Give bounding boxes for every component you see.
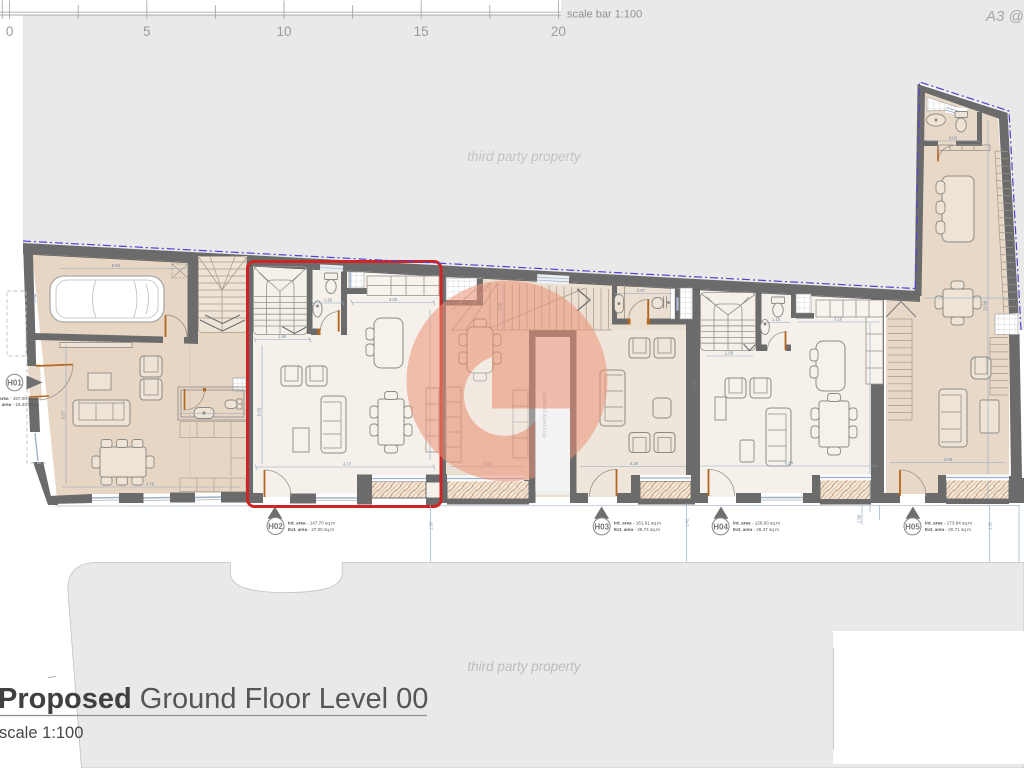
svg-text:4.79: 4.79: [146, 482, 155, 487]
svg-text:Ext. area - 29.74 sq.m: Ext. area - 29.74 sq.m: [614, 527, 660, 532]
svg-text:1.50: 1.50: [857, 514, 862, 523]
svg-text:H04: H04: [713, 522, 728, 531]
svg-text:20: 20: [551, 24, 566, 39]
svg-text:1.98: 1.98: [278, 334, 287, 339]
svg-text:5: 5: [143, 24, 151, 39]
svg-text:H05: H05: [905, 522, 920, 531]
svg-text:1.41: 1.41: [685, 518, 690, 527]
svg-text:Int. area - 197.00 sq.m: Int. area - 197.00 sq.m: [0, 396, 38, 401]
svg-text:Ext. area - 26.47 sq.m: Ext. area - 26.47 sq.m: [733, 527, 779, 532]
svg-text:15: 15: [414, 24, 429, 39]
svg-text:1.50: 1.50: [429, 521, 434, 530]
svg-text:third party property: third party property: [467, 659, 582, 674]
svg-text:Ext. area - 27.00 sq.m: Ext. area - 27.00 sq.m: [288, 527, 334, 532]
svg-text:1.20: 1.20: [324, 298, 333, 303]
svg-text:2.06: 2.06: [725, 351, 734, 356]
svg-text:3.26: 3.26: [389, 297, 398, 302]
svg-text:Int. area - 126.93 sq.m: Int. area - 126.93 sq.m: [733, 521, 780, 526]
svg-text:3.08: 3.08: [944, 457, 953, 462]
svg-text:5.65: 5.65: [257, 407, 262, 416]
svg-text:1.10: 1.10: [772, 317, 781, 322]
svg-text:6.80: 6.80: [785, 461, 794, 466]
svg-text:Ext. area - 20.71 sq.m: Ext. area - 20.71 sq.m: [925, 527, 971, 532]
svg-text:5.27: 5.27: [693, 379, 698, 388]
svg-text:scale bar 1:100: scale bar 1:100: [567, 9, 642, 21]
svg-text:third party property: third party property: [467, 149, 582, 164]
svg-text:1.50: 1.50: [988, 521, 993, 530]
svg-text:10: 10: [276, 24, 291, 39]
svg-text:Int. area - 147.70 sq.m: Int. area - 147.70 sq.m: [288, 521, 335, 526]
svg-text:5.57: 5.57: [61, 410, 66, 419]
svg-text:Ext. area - 16.32 sq.m: Ext. area - 16.32 sq.m: [0, 402, 38, 407]
svg-text:Int. area - 161.91 sq.m: Int. area - 161.91 sq.m: [614, 521, 661, 526]
svg-text:0: 0: [6, 24, 14, 39]
svg-text:11.88: 11.88: [983, 300, 988, 311]
svg-text:Int. area - 173.94 sq.m: Int. area - 173.94 sq.m: [925, 521, 972, 526]
svg-text:H03: H03: [594, 522, 609, 531]
svg-text:3.10: 3.10: [834, 317, 843, 322]
svg-text:Proposed Ground Floor Level 00: Proposed Ground Floor Level 00: [0, 683, 428, 715]
svg-text:2.98: 2.98: [32, 293, 37, 302]
svg-text:scale 1:100: scale 1:100: [0, 724, 83, 742]
svg-text:H02: H02: [268, 522, 283, 531]
svg-text:H01: H01: [7, 379, 22, 388]
svg-text:5.94: 5.94: [112, 263, 121, 268]
svg-text:2.97: 2.97: [637, 288, 646, 293]
svg-text:A3 @: A3 @: [985, 8, 1024, 25]
svg-text:4.77: 4.77: [343, 462, 352, 467]
svg-text:3.03: 3.03: [949, 136, 958, 141]
svg-text:4.28: 4.28: [630, 461, 639, 466]
